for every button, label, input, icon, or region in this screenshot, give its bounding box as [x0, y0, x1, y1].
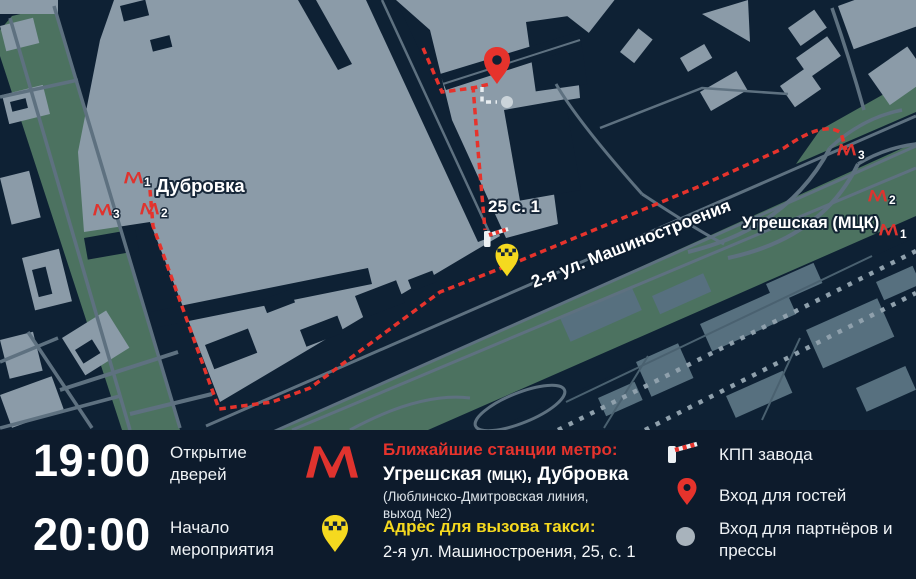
metro-logo-icon	[306, 446, 358, 483]
metro-exit-number: 2	[889, 193, 896, 207]
guest-pin-legend-icon	[677, 478, 697, 511]
partner-entrance-dot	[501, 96, 513, 108]
metro-stations: Угрешская (МЦК), Дубровка	[383, 464, 628, 486]
station-label-dubrovka: Дубровка	[156, 175, 245, 196]
metro-exit-number: 3	[858, 148, 865, 162]
schedule-time-1: 19:00	[33, 438, 151, 483]
metro-line-details-1: (Люблинско-Дмитровская линия,	[383, 489, 628, 506]
metro-exit-number: 1	[144, 175, 151, 189]
station-ugreshskaya-text: Угрешская	[383, 464, 487, 485]
metro-exit-number: 2	[161, 206, 168, 220]
partner-legend-label: Вход для партнёров и прессы	[719, 518, 897, 562]
schedule-label-2: Начало мероприятия	[170, 517, 280, 562]
event-map-infographic: { "colors": { "map_background": "#0E2134…	[0, 0, 916, 579]
station-mck-text: (МЦК)	[487, 467, 527, 483]
taxi-info-block: Адрес для вызова такси: 2-я ул. Машиност…	[383, 518, 636, 562]
taxi-pin-legend-icon	[320, 514, 350, 561]
checkpoint-legend-icon	[666, 440, 702, 471]
partner-dot-legend-icon	[676, 527, 695, 546]
station-dubrovka-text: , Дубровка	[527, 464, 629, 485]
metro-info-block: Ближайшие станции метро: Угрешская (МЦК)…	[383, 441, 628, 522]
metro-exit-number: 3	[113, 207, 120, 221]
metro-heading: Ближайшие станции метро:	[383, 441, 628, 460]
metro-exit-number: 1	[900, 227, 907, 241]
building-label: 25 с. 1	[488, 197, 540, 216]
checkpoint-legend-label: КПП завода	[719, 444, 813, 466]
info-panel: 19:00 Открытие дверей 20:00 Начало мероп…	[0, 430, 916, 579]
schedule-label-1: Открытие дверей	[170, 442, 280, 487]
map: 1 3 2 3 2 1 Дубровка Угрешская (МЦК) 25 …	[0, 0, 916, 430]
station-label-ugreshskaya: Угрешская (МЦК)	[742, 214, 879, 232]
schedule-time-2: 20:00	[33, 512, 151, 557]
taxi-heading: Адрес для вызова такси:	[383, 518, 636, 537]
guest-legend-label: Вход для гостей	[719, 485, 846, 507]
map-canvas: 1 3 2 3 2 1 Дубровка Угрешская (МЦК) 25 …	[0, 0, 916, 430]
taxi-address: 2-я ул. Машиностроения, 25, с. 1	[383, 543, 636, 562]
